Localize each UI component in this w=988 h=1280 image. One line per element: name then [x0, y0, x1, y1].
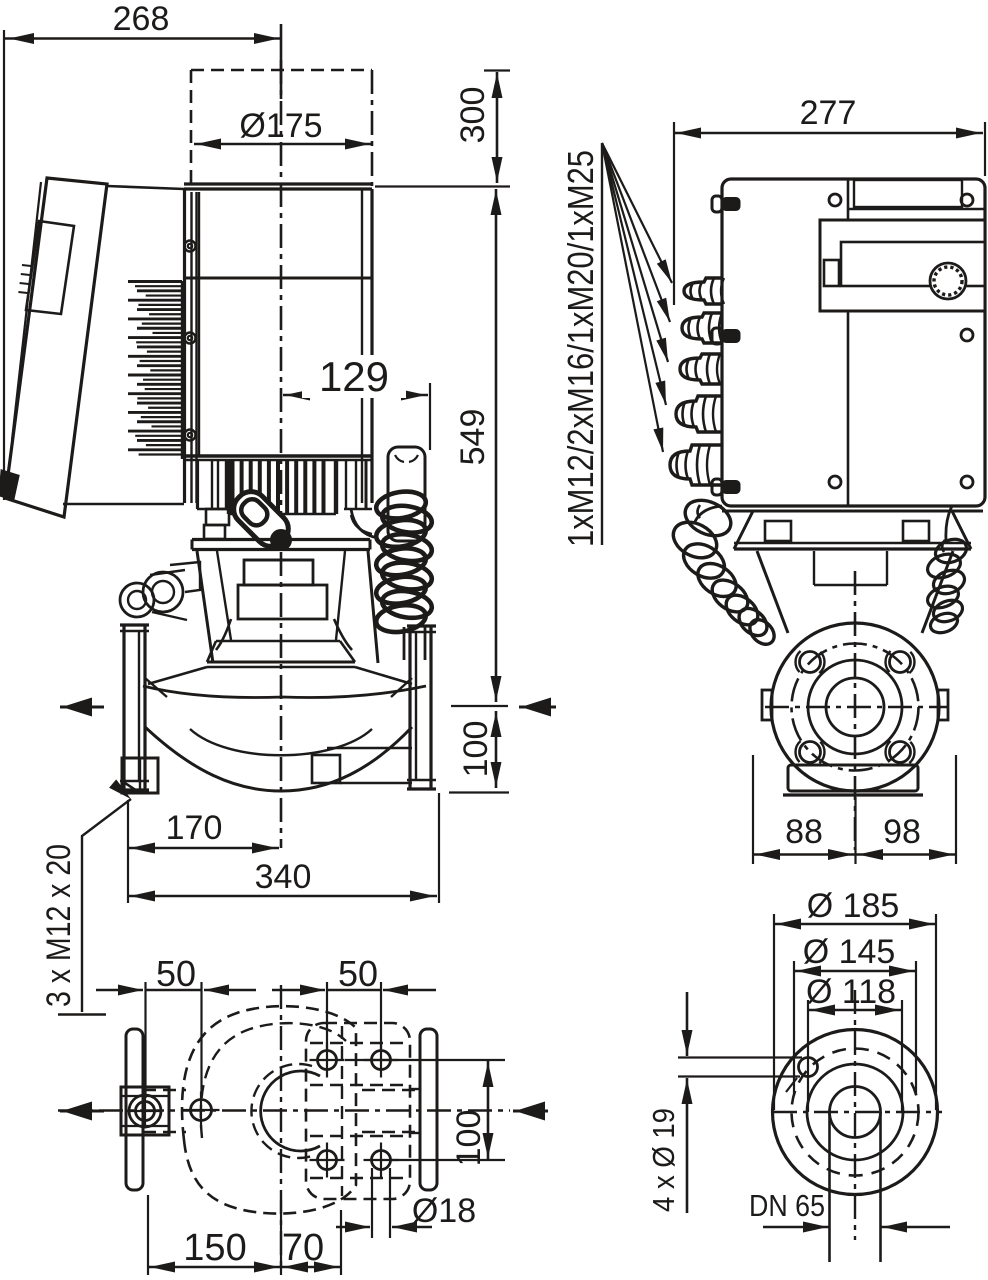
- svg-text:268: 268: [113, 0, 170, 38]
- svg-text:88: 88: [785, 813, 823, 851]
- svg-text:70: 70: [282, 1227, 324, 1269]
- svg-text:150: 150: [183, 1227, 246, 1269]
- svg-text:3 x M12 x 20: 3 x M12 x 20: [40, 844, 78, 1007]
- svg-text:Ø18: Ø18: [412, 1192, 476, 1230]
- svg-text:Ø 145: Ø 145: [803, 933, 896, 971]
- svg-text:Ø 118: Ø 118: [806, 973, 896, 1011]
- svg-text:98: 98: [883, 813, 921, 851]
- svg-text:4 x Ø 19: 4 x Ø 19: [646, 1108, 681, 1212]
- svg-text:340: 340: [255, 858, 312, 896]
- svg-text:300: 300: [454, 87, 492, 144]
- svg-text:DN 65: DN 65: [749, 1188, 825, 1223]
- svg-text:277: 277: [800, 94, 857, 132]
- svg-text:100: 100: [450, 1110, 488, 1167]
- svg-text:100: 100: [457, 721, 495, 778]
- svg-text:170: 170: [166, 809, 223, 847]
- svg-text:50: 50: [338, 953, 378, 994]
- svg-text:1xM12/2xM16/1xM20/1xM25: 1xM12/2xM16/1xM20/1xM25: [560, 150, 601, 547]
- svg-text:Ø175: Ø175: [239, 107, 322, 145]
- svg-text:549: 549: [454, 409, 492, 466]
- svg-text:Ø 185: Ø 185: [807, 887, 900, 925]
- svg-text:50: 50: [156, 953, 196, 994]
- svg-text:129: 129: [319, 353, 389, 400]
